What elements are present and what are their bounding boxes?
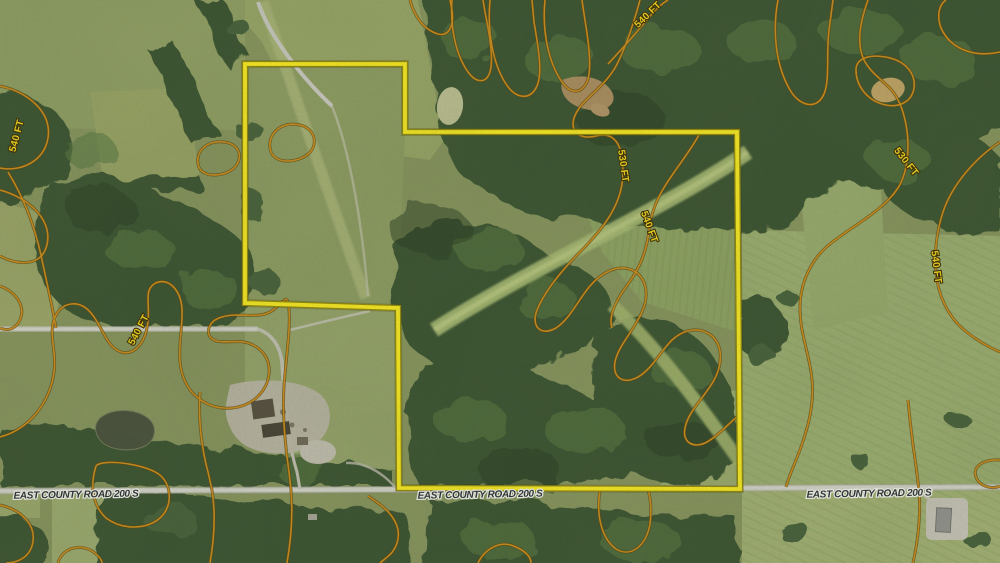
- aerial-map[interactable]: 540 FT530 FT540 FT530 FT540 FT540 FT540 …: [0, 0, 1000, 563]
- farm-shed: [297, 437, 308, 445]
- road-name-label: EAST COUNTY ROAD 200 S: [13, 489, 139, 502]
- east-building: [935, 508, 951, 533]
- farm-building: [251, 399, 275, 420]
- road-name-label: EAST COUNTY ROAD 200 S: [417, 489, 543, 502]
- pond: [96, 411, 155, 450]
- road-name-label: EAST COUNTY ROAD 200 S: [806, 488, 932, 501]
- map-viewport[interactable]: 540 FT530 FT540 FT530 FT540 FT540 FT540 …: [0, 0, 1000, 563]
